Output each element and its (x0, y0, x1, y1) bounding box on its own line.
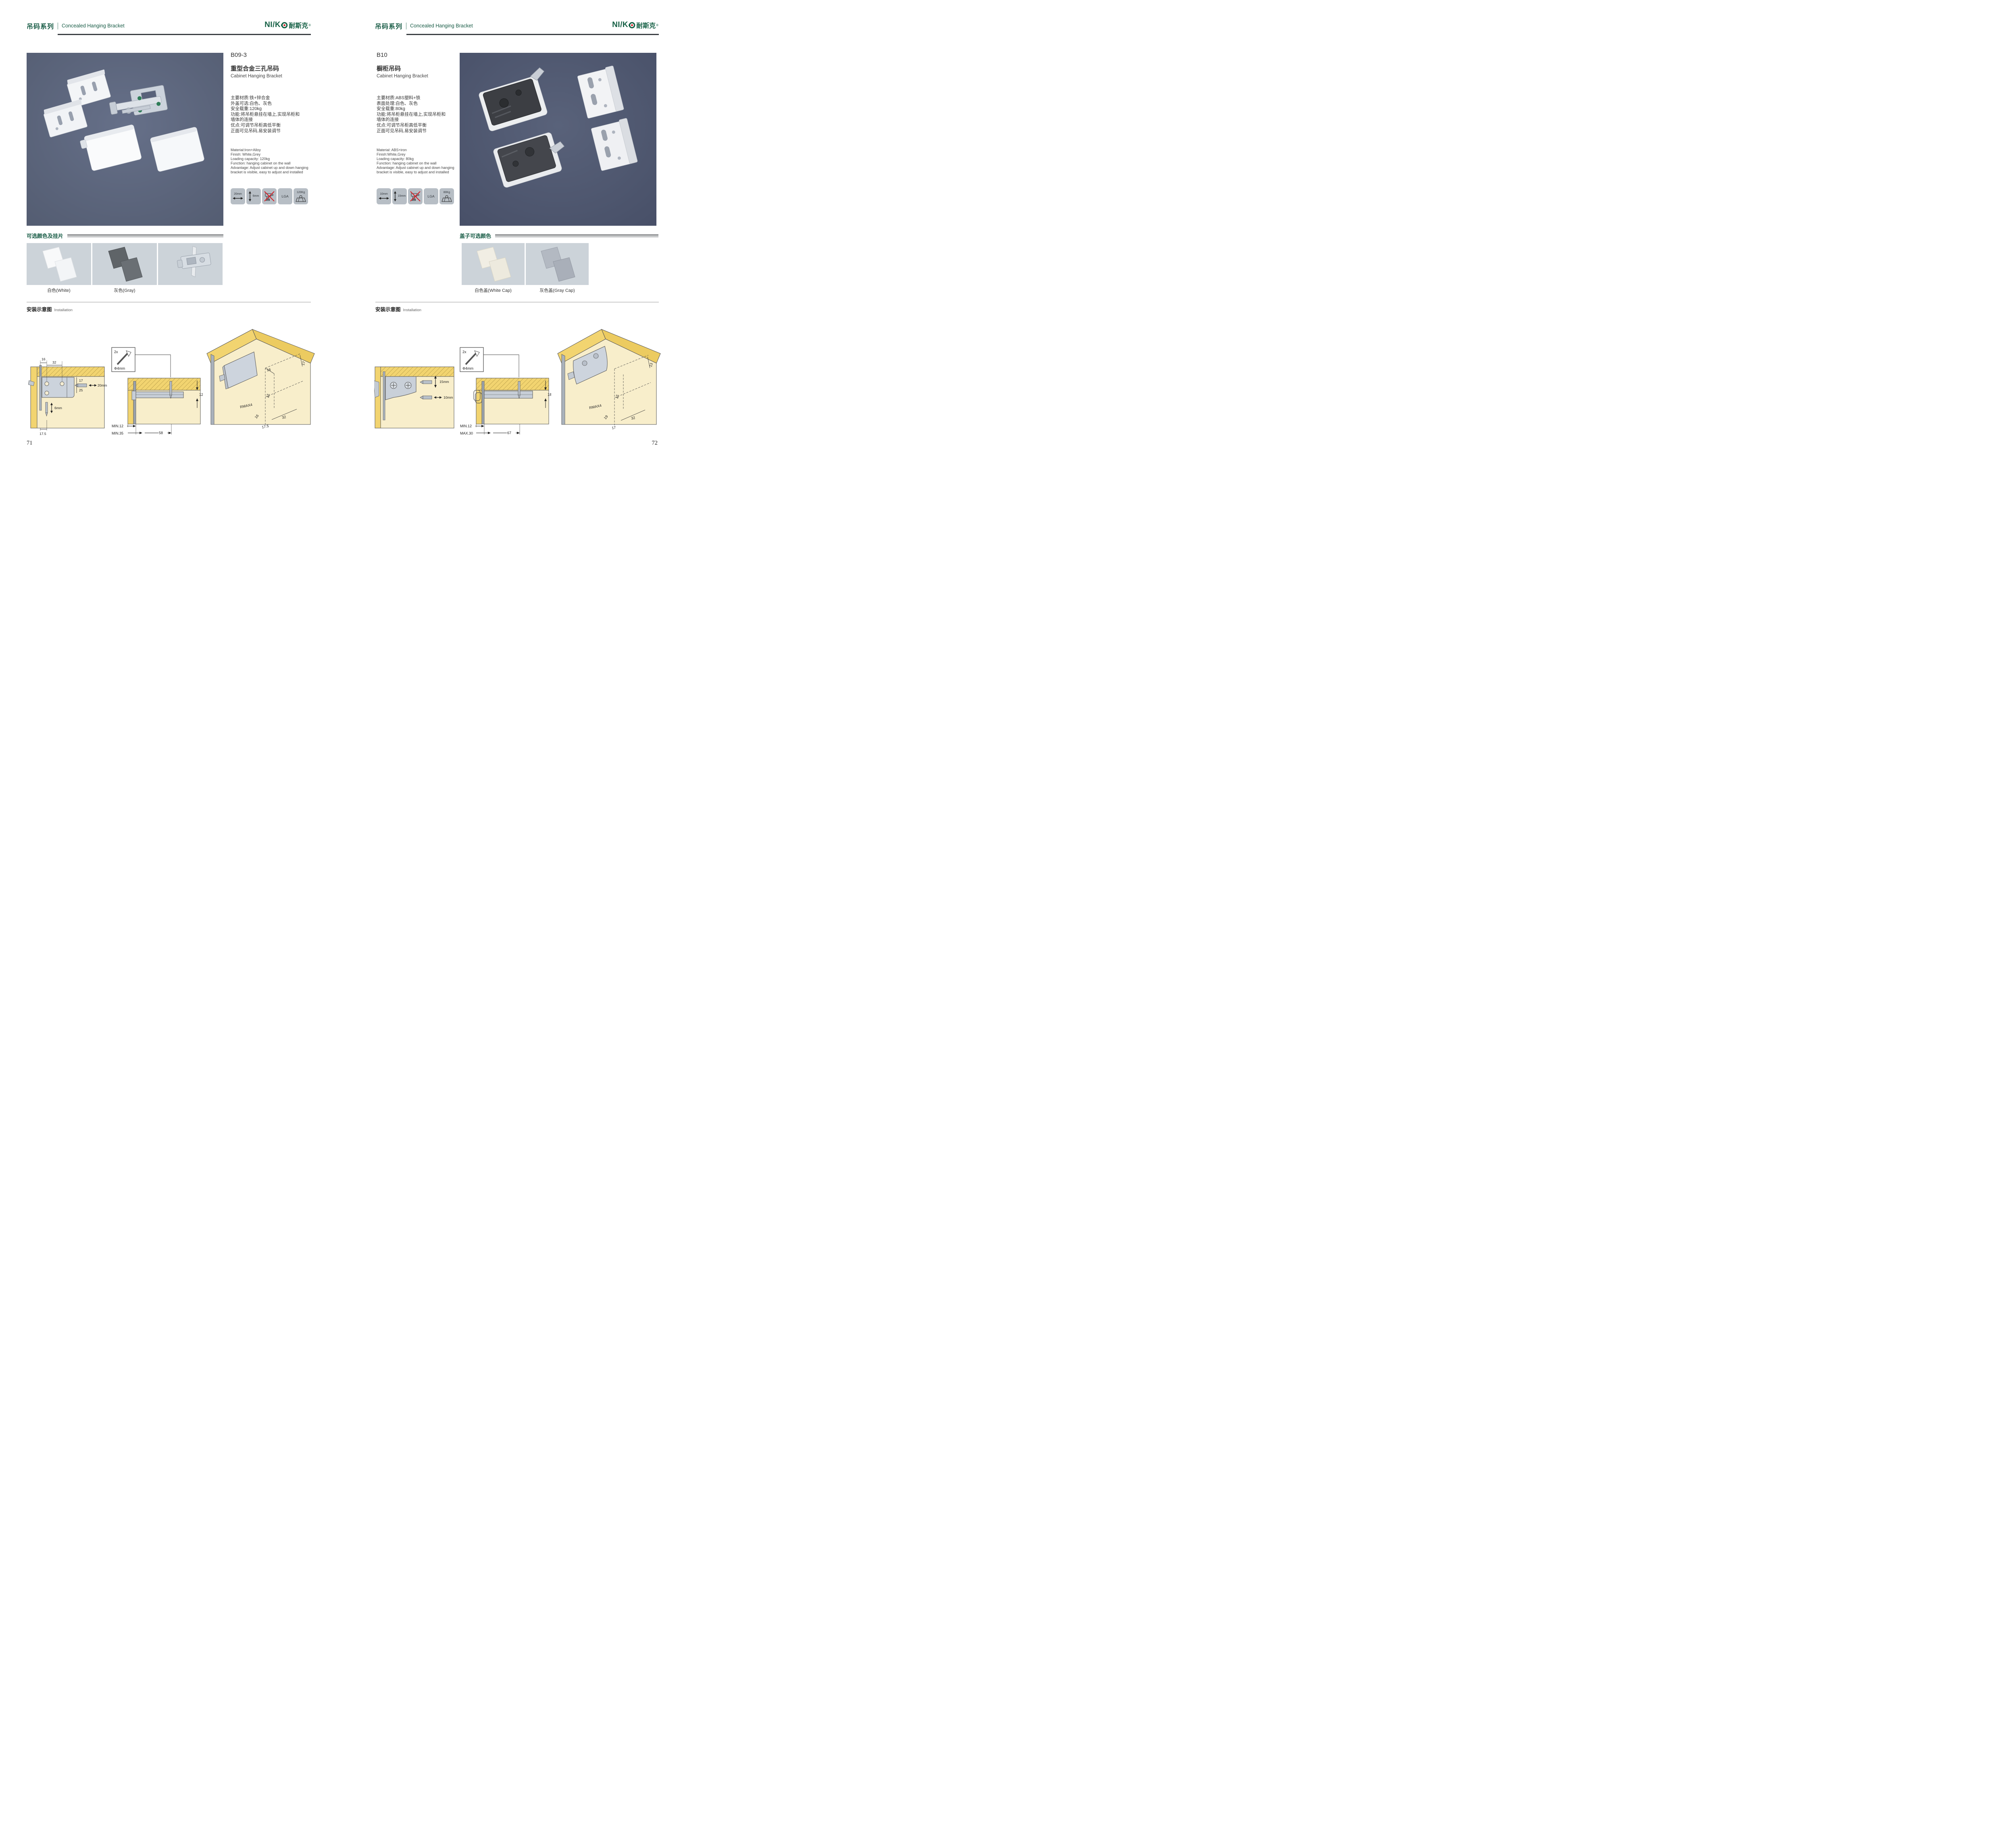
badge-label: 10mm (380, 193, 387, 196)
svg-text:20mm: 20mm (98, 383, 107, 387)
svg-text:MIN.12: MIN.12 (460, 424, 472, 428)
phillips-screw (390, 382, 397, 389)
spec-line: Advantage: Adjust cabinet up and down ha… (377, 166, 464, 170)
spec-line: 功能:将吊柜悬挂在墙上,实现吊柜和 (377, 112, 464, 118)
svg-text:2x: 2x (114, 350, 118, 354)
installation-header: 安装示意图 Installation (375, 305, 421, 313)
swatch-label (158, 287, 223, 293)
spec-line: 主要材质:ABS塑料+铁 (377, 96, 464, 101)
swatch-label: 白色(White) (27, 287, 91, 293)
model-number: B09-3 (231, 52, 319, 58)
swatch-white (27, 243, 91, 285)
svg-text:12: 12 (199, 393, 203, 397)
color-options-title: 可选颜色及挂片 (27, 232, 63, 239)
spec-line: 主要材质:铁+锌合金 (231, 96, 319, 101)
double-rule (67, 235, 223, 237)
svg-text:18: 18 (548, 393, 551, 397)
installation-header: 安装示意图 Installation (27, 305, 73, 313)
logo-cn-text: 耐斯克 (636, 20, 656, 30)
svg-text:6mm: 6mm (54, 406, 62, 410)
page-header: 吊码系列 Concealed Hanging Bracket (27, 21, 125, 31)
series-title-en: Concealed Hanging Bracket (410, 23, 473, 29)
badge-height: 6mm (246, 188, 261, 204)
product-name-cn: 橱柜吊码 (377, 64, 464, 73)
svg-text:42: 42 (266, 394, 270, 398)
header-divider (58, 23, 58, 29)
spec-line: Finish:White,Grey (377, 152, 464, 157)
spec-line: 外盖可选:白色、灰色 (231, 101, 319, 107)
header-rule (58, 34, 311, 35)
phillips-screw (405, 382, 411, 389)
spec-line: 优点:可调节吊柜高低平衡 (377, 123, 464, 129)
svg-text:25: 25 (79, 388, 83, 392)
svg-text:MIN.35: MIN.35 (112, 431, 123, 435)
svg-text:MIN.12: MIN.12 (112, 424, 123, 428)
swatch-label: 白色盖(White Cap) (462, 287, 525, 293)
feature-badges: 20mm 6mm (231, 188, 319, 204)
screw-callout: 2x Φ4mm (112, 347, 135, 372)
badge-height: 15mm (392, 188, 407, 204)
spec-line: 优点:可调节吊柜高低平衡 (231, 123, 319, 129)
svg-text:Φ4mm: Φ4mm (462, 366, 473, 370)
series-title-en: Concealed Hanging Bracket (62, 23, 125, 29)
product-name-en: Cabinet Hanging Bracket (231, 74, 319, 79)
badge-load: 80Kg (439, 188, 454, 204)
hook-clip (374, 381, 379, 397)
badge-no-drill (408, 188, 423, 204)
no-drill-icon (264, 191, 275, 202)
swatch-white-cap (462, 243, 525, 285)
spec-line: bracket is visible, easy to adjust and i… (231, 170, 319, 175)
svg-text:17.5: 17.5 (261, 424, 269, 429)
svg-text:17: 17 (79, 379, 83, 383)
product-info: B09-3 重型合金三孔吊码 Cabinet Hanging Bracket 主… (231, 52, 319, 204)
installation-diagram-rail: 2x Φ4mm 18 (459, 347, 551, 436)
installation-title-en: Installation (403, 308, 421, 312)
section-rule (27, 302, 311, 302)
logo-target-icon (629, 22, 635, 29)
spec-line: 表面处理:白色、灰色 (377, 101, 464, 107)
nisko-logo: NI/K 耐斯克 ® (612, 20, 658, 30)
height-arrow-icon (394, 191, 397, 202)
spec-line: Finish: White,Grey (231, 152, 319, 157)
spec-line: 墙体的连接 (377, 117, 464, 123)
installation-diagram-section: 15mm 10mm (374, 356, 457, 436)
spec-line: Loading capacity: 120kg (231, 157, 319, 161)
badge-label: 6mm (253, 195, 259, 198)
installation-diagram-rail: 2x Φ4mm 12 MIN.12 (111, 347, 203, 436)
header-rule (406, 34, 659, 35)
header-divider (406, 23, 406, 29)
logo-target-icon (281, 22, 288, 29)
svg-text:Φ4mm: Φ4mm (114, 366, 125, 370)
spec-line: 安全载重:120kg (231, 106, 319, 112)
registered-mark: ® (308, 23, 311, 27)
swatch-gray (92, 243, 157, 285)
nisko-logo: NI/K 耐斯克 ® (264, 20, 311, 30)
installation-diagram-perspective: 16 17 42 RMAX4 16 32 17.5 (205, 329, 315, 436)
installation-diagram-perspective: 13 42 RMAX4 19 32 17 (556, 329, 661, 436)
swatch-label: 灰色盖(Gray Cap) (526, 287, 589, 293)
product-photo (27, 53, 223, 226)
product-photo (460, 53, 656, 226)
spec-line: 墙体的连接 (231, 117, 319, 123)
badge-label: LGA (281, 195, 288, 198)
rail-hook (132, 391, 136, 400)
swatch-labels: 白色(White) 灰色(Gray) (27, 287, 223, 293)
color-swatches (462, 243, 589, 285)
swatch-labels: 白色盖(White Cap) 灰色盖(Gray Cap) (462, 287, 589, 293)
screw-vertical (518, 381, 520, 398)
swatch-label: 灰色(Gray) (92, 287, 157, 293)
spec-line: Function: hanging cabinet on the wall (377, 161, 464, 166)
spec-line: Function: hanging cabinet on the wall (231, 161, 319, 166)
color-swatches (27, 243, 223, 285)
badge-label: 120Kg (297, 191, 305, 194)
installation-diagram-section: 20mm 16 32 17 25 6mm 17.5 (28, 356, 107, 436)
svg-text:2x: 2x (462, 350, 467, 354)
installation-title-cn: 安装示意图 (27, 305, 52, 313)
svg-text:32: 32 (631, 416, 635, 420)
color-options-header: 盖子可选颜色 (460, 232, 658, 239)
badge-width: 20mm (231, 188, 245, 204)
weight-icon (296, 195, 306, 202)
specs-en: Material: ABS+iron Finish:White,Grey Loa… (377, 148, 464, 175)
page-number: 72 (652, 440, 658, 447)
width-arrow-icon (379, 197, 389, 200)
svg-text:15mm: 15mm (439, 380, 449, 384)
width-arrow-icon (233, 197, 243, 200)
installation-title-en: Installation (54, 308, 73, 312)
page-number: 71 (27, 440, 33, 447)
swatch-bracket (158, 243, 223, 285)
svg-text:58: 58 (159, 431, 163, 435)
series-title-cn: 吊码系列 (27, 21, 54, 31)
logo-latin-text: NI/K (612, 21, 628, 29)
registered-mark: ® (656, 23, 658, 27)
svg-text:10mm: 10mm (444, 395, 453, 399)
spec-line: 功能:将吊柜悬挂在墙上,实现吊柜和 (231, 112, 319, 118)
double-rule (495, 235, 658, 237)
badge-label: LGA (427, 195, 434, 198)
model-number: B10 (377, 52, 464, 58)
spec-line: 正面可见吊码,易安装调节 (377, 129, 464, 134)
spec-line: 正面可见吊码,易安装调节 (231, 129, 319, 134)
color-options-title: 盖子可选颜色 (460, 232, 491, 239)
product-info: B10 橱柜吊码 Cabinet Hanging Bracket 主要材质:AB… (377, 52, 464, 204)
badge-label: 20mm (234, 193, 242, 196)
specs-cn: 主要材质:铁+锌合金 外盖可选:白色、灰色 安全载重:120kg 功能:将吊柜悬… (231, 96, 319, 134)
svg-text:16: 16 (42, 357, 46, 361)
svg-text:32: 32 (281, 415, 286, 420)
series-title-cn: 吊码系列 (375, 21, 402, 31)
badge-label: 80Kg (444, 191, 450, 194)
svg-text:16: 16 (267, 368, 271, 372)
screw-vertical (170, 381, 172, 398)
no-drill-icon (410, 191, 421, 202)
installation-title-cn: 安装示意图 (375, 305, 401, 313)
feature-badges: 10mm 15mm (377, 188, 464, 204)
page-left: 吊码系列 Concealed Hanging Bracket NI/K 耐斯克 … (0, 0, 338, 462)
specs-cn: 主要材质:ABS塑料+铁 表面处理:白色、灰色 安全载重:80kg 功能:将吊柜… (377, 96, 464, 134)
svg-text:42: 42 (615, 395, 619, 399)
product-name-en: Cabinet Hanging Bracket (377, 74, 464, 79)
logo-latin-text: NI/K (264, 21, 281, 29)
svg-text:32: 32 (52, 360, 56, 364)
spec-line: Loading capacity: 80kg (377, 157, 464, 161)
spec-line: Advantage: Adjust cabinet up and down ha… (231, 166, 319, 170)
svg-text:67: 67 (507, 431, 511, 435)
specs-en: Material:Iron+Alloy Finish: White,Grey L… (231, 148, 319, 175)
page-header: 吊码系列 Concealed Hanging Bracket (375, 21, 473, 31)
svg-text:17.5: 17.5 (40, 432, 46, 436)
spec-line: Material: ABS+iron (377, 148, 464, 152)
badge-no-drill (262, 188, 277, 204)
swatch-gray-cap (526, 243, 589, 285)
badge-label: 15mm (398, 195, 406, 198)
product-name-cn: 重型合金三孔吊码 (231, 64, 319, 73)
height-arrow-icon (248, 191, 252, 202)
badge-lga: LGA (278, 188, 292, 204)
page-right: 吊码系列 Concealed Hanging Bracket NI/K 耐斯克 … (338, 0, 676, 462)
badge-width: 10mm (377, 188, 391, 204)
spec-line: Material:Iron+Alloy (231, 148, 319, 152)
screw-callout: 2x Φ4mm (460, 347, 483, 372)
spec-line: 安全载重:80kg (377, 106, 464, 112)
logo-cn-text: 耐斯克 (289, 20, 308, 30)
badge-load: 120Kg (294, 188, 308, 204)
badge-lga: LGA (424, 188, 438, 204)
svg-text:17: 17 (611, 425, 616, 430)
svg-text:MAX.30: MAX.30 (460, 431, 473, 435)
spec-line: bracket is visible, easy to adjust and i… (377, 170, 464, 175)
weight-icon (442, 195, 452, 202)
color-options-header: 可选颜色及挂片 (27, 232, 223, 239)
section-rule (375, 302, 659, 302)
catalog-spread: 吊码系列 Concealed Hanging Bracket NI/K 耐斯克 … (0, 0, 676, 462)
